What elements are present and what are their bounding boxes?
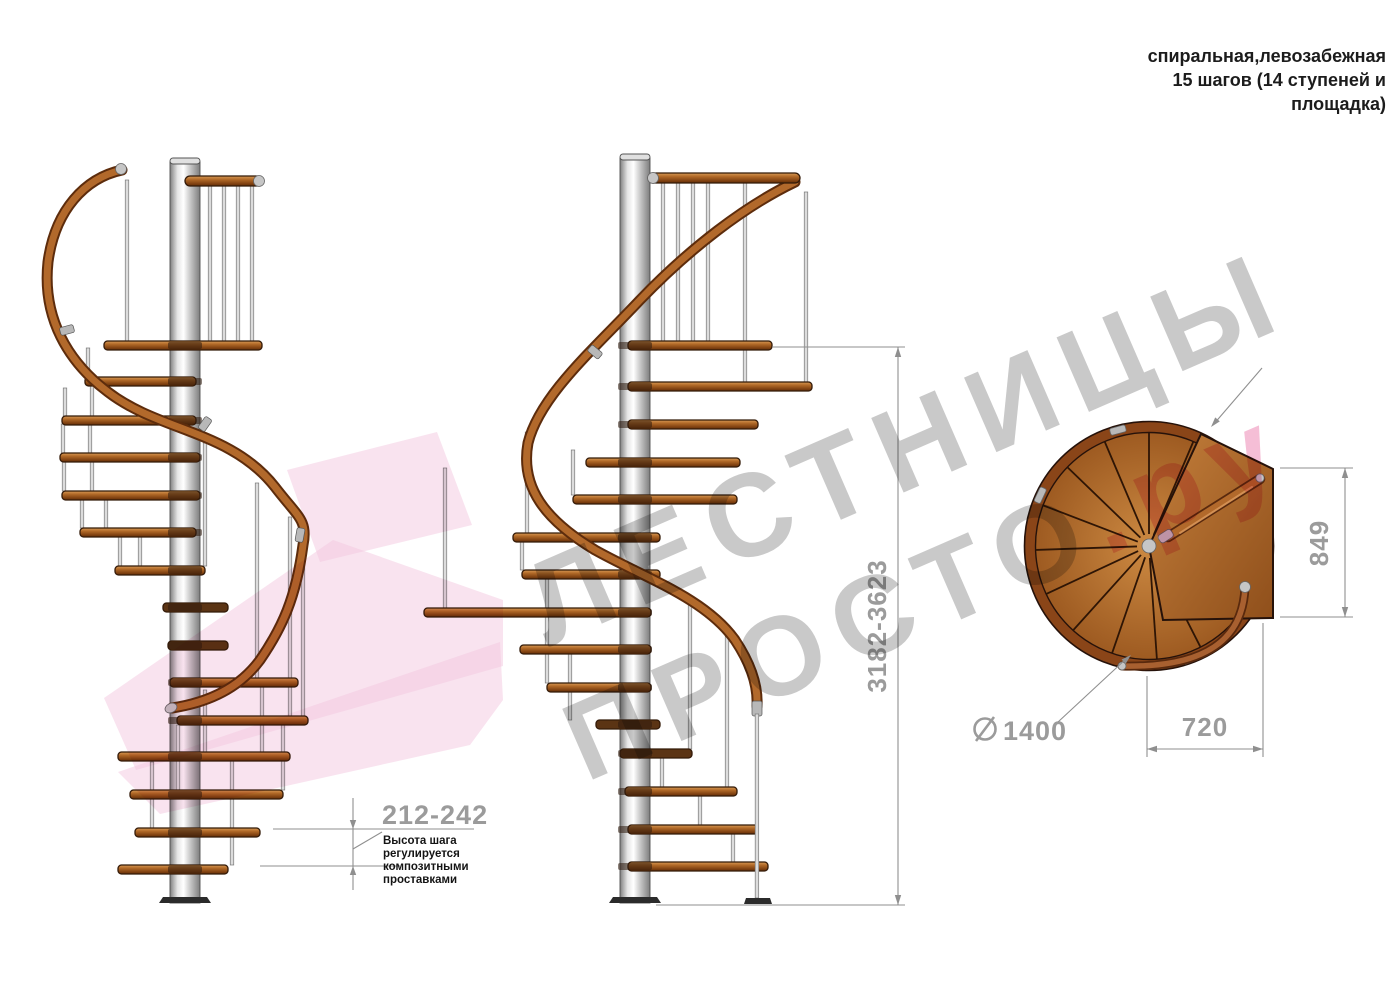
tread-pole-collar: [168, 866, 202, 873]
tread-pole-collar: [168, 791, 202, 798]
baluster: [80, 498, 84, 528]
step-height-value: 212-242: [382, 800, 488, 830]
tread-pole-collar: [618, 609, 652, 616]
pole-top-cap: [620, 154, 650, 160]
tread-pole-collar: [168, 567, 202, 574]
baluster: [230, 756, 234, 865]
tread-pole-collar: [618, 342, 652, 349]
tread-pole-collar: [168, 342, 202, 349]
step-height-note-line: композитными: [383, 861, 469, 873]
center-handrail: [527, 182, 795, 706]
baluster: [63, 388, 67, 416]
drawing-canvas: 212-242 Высота шага регулируется компози…: [0, 0, 1400, 1000]
dimension-diameter: 1400: [975, 655, 1132, 746]
tread-pole-collar: [168, 829, 202, 836]
arrow-down-icon: [350, 820, 356, 829]
tread-pole-collar: [618, 788, 652, 795]
drawing-title: спиральная,левозабежная 15 шагов (14 сту…: [1148, 44, 1386, 116]
arrow-down-icon: [895, 895, 901, 905]
tread-pole-collar: [618, 459, 652, 466]
pole-top-cap: [170, 158, 200, 164]
tread-pole-collar: [618, 750, 652, 757]
stair-tread: [130, 790, 283, 799]
left-stair-generated: [60, 158, 308, 903]
plan-rail-tip: [1256, 474, 1264, 482]
arrow-up-icon: [350, 866, 356, 875]
pole-base-flange: [609, 897, 661, 903]
tread-pole-collar: [168, 679, 202, 686]
baluster: [88, 422, 92, 453]
tread-pole-collar: [618, 383, 652, 390]
tread-pole-collar: [168, 454, 202, 461]
tread-pole-collar: [618, 684, 652, 691]
landing-depth-value: 849: [1304, 520, 1334, 566]
center-handrail-outline: [527, 182, 795, 706]
plan-center-pole: [1142, 539, 1156, 553]
stair-tread: [424, 608, 651, 617]
step-height-note-line: Высота шага: [383, 835, 457, 847]
tread-pole-collar: [168, 717, 202, 724]
stair-tread: [586, 458, 740, 467]
baluster: [725, 633, 729, 787]
tread-pole-collar: [618, 721, 652, 728]
tread-pole-collar: [168, 492, 202, 499]
title-line: 15 шагов (14 ступеней и: [1148, 68, 1386, 92]
landing-guardrail: [648, 173, 800, 183]
baluster: [691, 183, 695, 341]
dimension-step-height: 212-242 Высота шага регулируется компози…: [260, 798, 488, 890]
diameter-symbol-icon: [975, 717, 996, 741]
total-height-value: 3182-3623: [862, 559, 892, 692]
baluster: [90, 385, 94, 416]
guardrail-end-cap: [254, 176, 265, 187]
tread-pole-collar: [168, 604, 202, 611]
top-plan-view: [1025, 422, 1274, 671]
stair-tread: [118, 752, 290, 761]
plan-rail-post: [1240, 582, 1251, 593]
rail-end-cap: [116, 164, 127, 175]
dimension-total-height: 3182-3623: [772, 347, 905, 905]
baluster: [706, 183, 710, 341]
guardrail-end-cap: [648, 173, 659, 184]
baluster: [661, 183, 665, 341]
side-view-center-staircase: [424, 154, 905, 905]
baluster: [125, 180, 129, 341]
dimension-landing-depth: 849: [1280, 468, 1353, 617]
tread-pole-collar: [618, 646, 652, 653]
baluster: [443, 468, 447, 608]
center-stair-generated: [424, 154, 812, 903]
arrow-left-icon: [1147, 746, 1157, 752]
tread-pole-collar: [618, 826, 652, 833]
baluster: [688, 600, 692, 749]
arrow-up-icon: [895, 347, 901, 357]
post-foot: [744, 898, 772, 904]
tread-pole-collar: [168, 753, 202, 760]
baluster: [250, 184, 254, 341]
arrow-down-icon: [1342, 607, 1348, 617]
tread-pole-collar: [168, 378, 202, 385]
baluster: [203, 443, 207, 566]
step-height-note-line: регулируется: [383, 848, 460, 860]
tread-pole-collar: [618, 863, 652, 870]
baluster: [208, 184, 212, 341]
tread-pole-collar: [618, 421, 652, 428]
arrow-right-icon: [1253, 746, 1263, 752]
tread-pole-collar: [618, 496, 652, 503]
baluster: [104, 496, 108, 528]
diameter-value: 1400: [1003, 716, 1067, 746]
baluster: [62, 461, 66, 491]
baluster: [255, 483, 259, 678]
baluster: [138, 533, 142, 566]
baluster: [743, 350, 747, 382]
baluster: [804, 192, 808, 382]
rail-support-post: [755, 714, 759, 898]
baluster: [520, 538, 524, 570]
pole-base-flange: [159, 897, 211, 903]
step-length-value: 720: [1182, 712, 1228, 742]
stair-tread: [573, 495, 737, 504]
arrow-up-icon: [1342, 468, 1348, 478]
baluster: [61, 424, 65, 453]
step-height-note-line: проставками: [383, 874, 457, 886]
landing-guardrail: [185, 176, 262, 186]
title-line: спиральная,левозабежная: [1148, 44, 1386, 68]
baluster: [571, 450, 575, 495]
leader-landing-platform: [1211, 368, 1262, 427]
baluster: [545, 578, 549, 683]
side-view-left-staircase: [47, 158, 308, 903]
baluster: [90, 459, 94, 491]
staircase-drawing: 212-242 Высота шага регулируется компози…: [0, 0, 1400, 1000]
tread-pole-collar: [168, 642, 202, 649]
baluster: [236, 184, 240, 341]
baluster: [118, 535, 122, 566]
title-line: площадка): [1148, 92, 1386, 116]
stair-tread: [628, 382, 812, 391]
baluster: [222, 184, 226, 341]
tread-pole-collar: [168, 529, 202, 536]
tread-pole-collar: [618, 534, 652, 541]
